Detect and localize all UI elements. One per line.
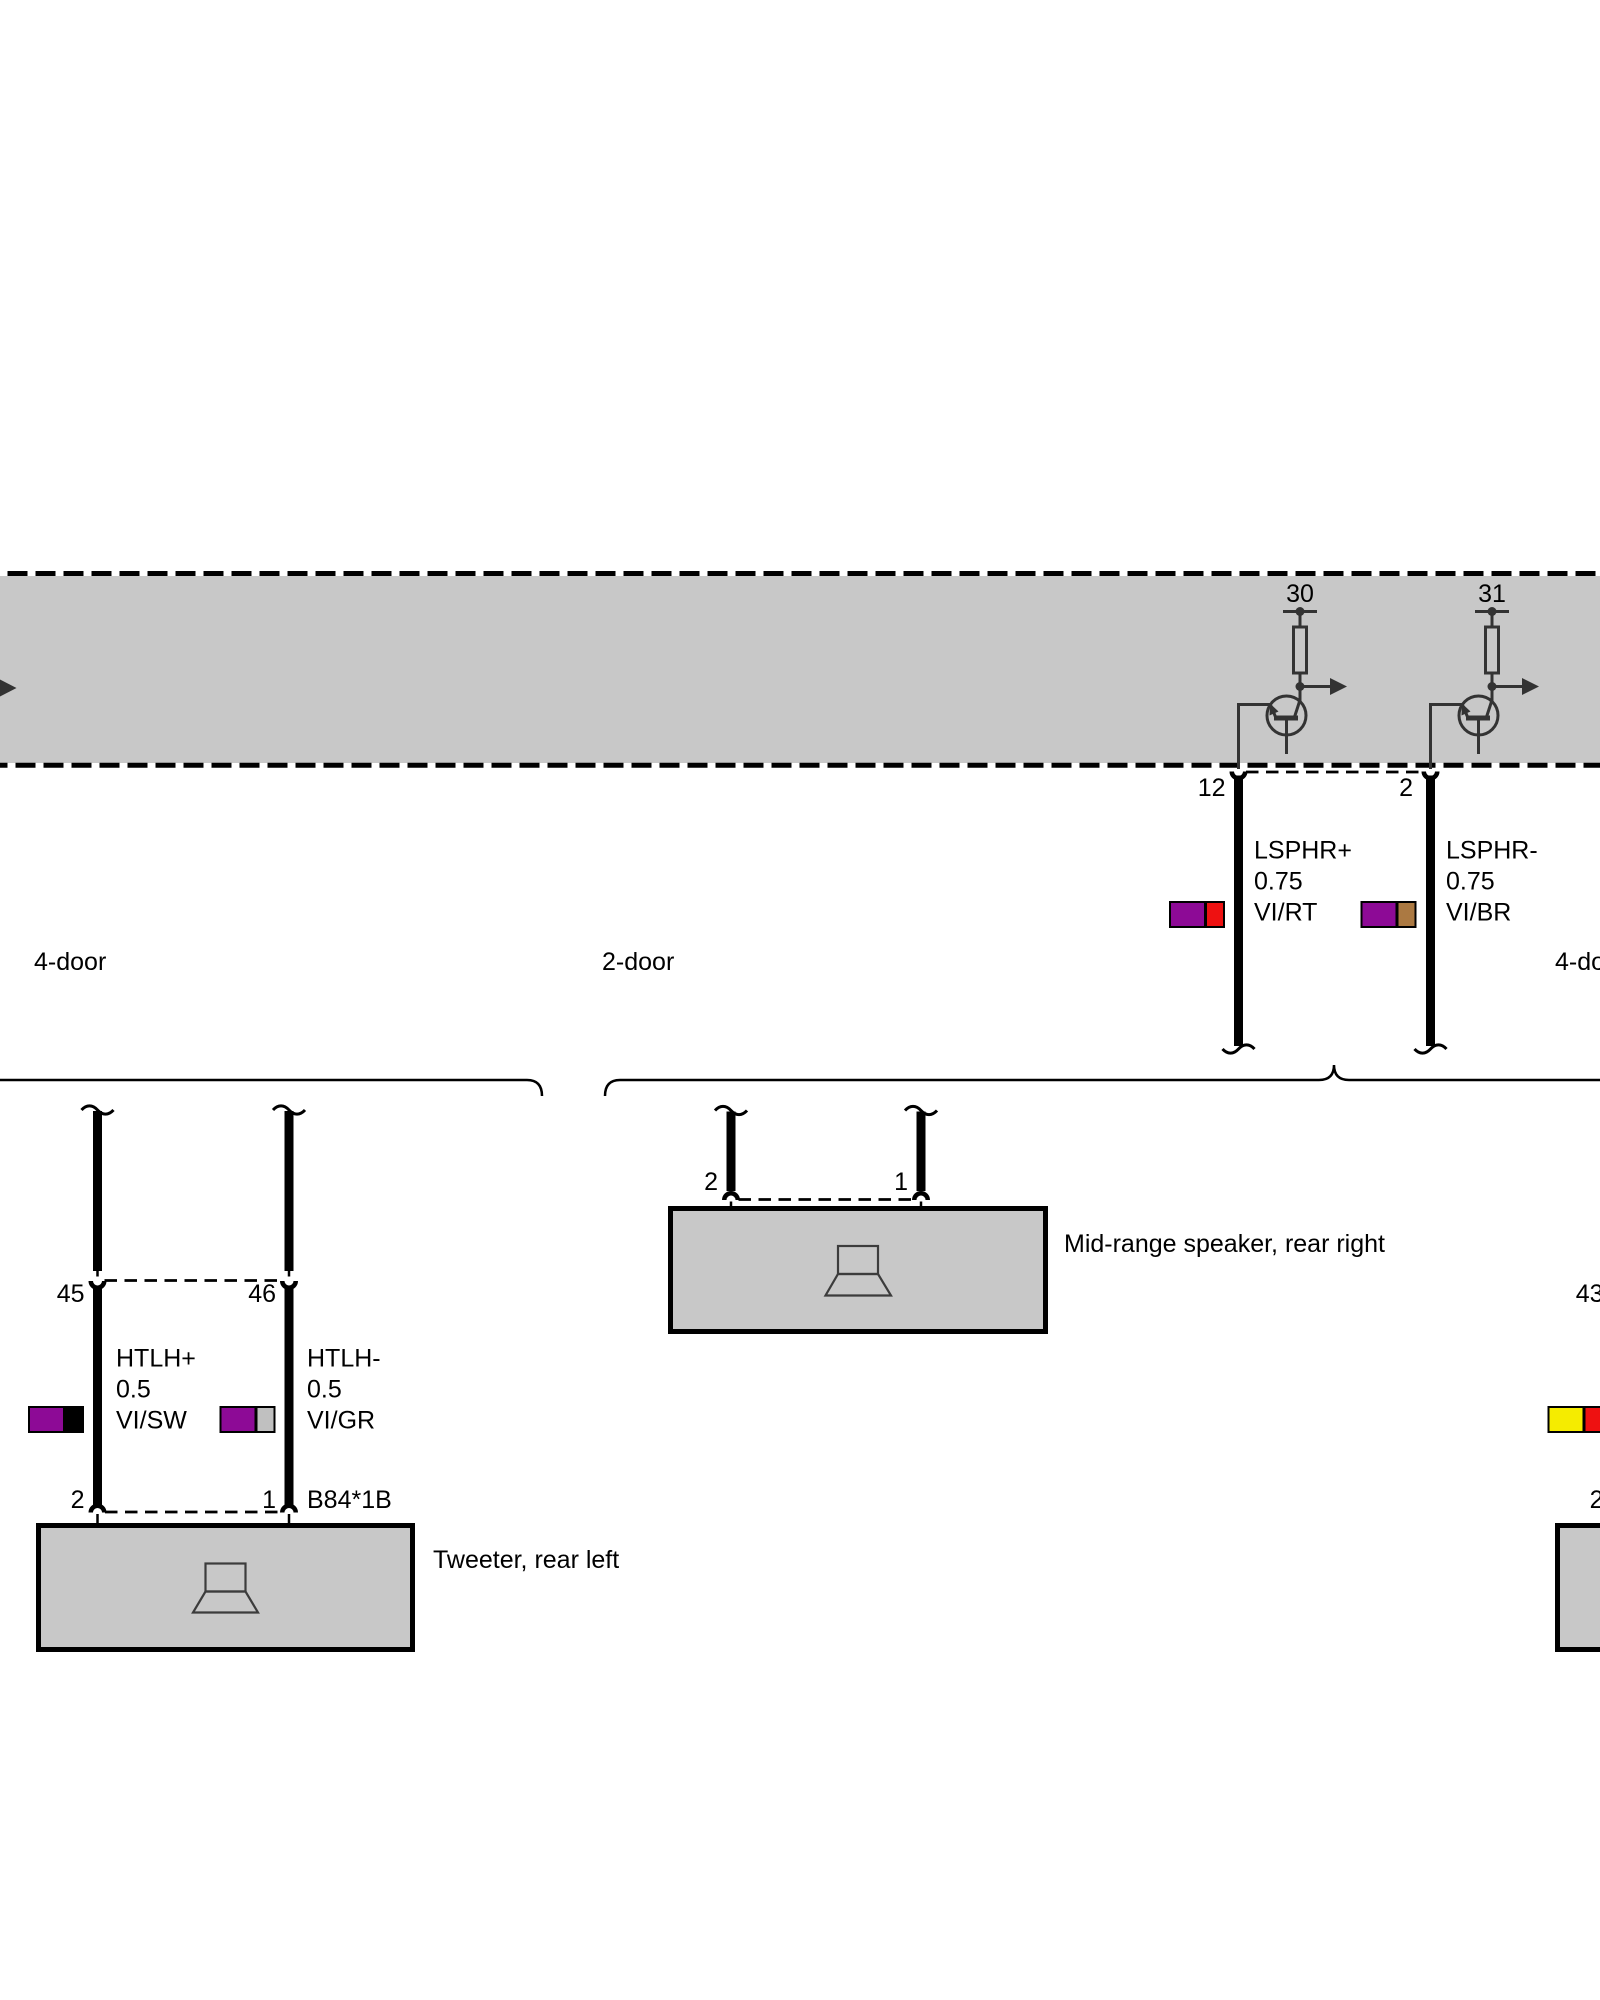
svg-text:2-door: 2-door — [602, 948, 674, 976]
svg-text:2: 2 — [704, 1168, 718, 1196]
svg-text:0.5: 0.5 — [307, 1376, 342, 1404]
svg-text:0.75: 0.75 — [1446, 868, 1495, 896]
svg-text:2: 2 — [71, 1486, 85, 1514]
svg-text:30: 30 — [1286, 580, 1314, 608]
svg-text:12: 12 — [1198, 774, 1226, 802]
svg-text:VI/RT: VI/RT — [1254, 899, 1317, 927]
svg-text:46: 46 — [248, 1280, 276, 1308]
svg-text:0.75: 0.75 — [1254, 868, 1303, 896]
svg-text:45: 45 — [57, 1280, 85, 1308]
svg-text:LSPHR+: LSPHR+ — [1254, 837, 1352, 865]
svg-text:VI/SW: VI/SW — [116, 1407, 187, 1435]
svg-text:HTLH-: HTLH- — [307, 1345, 381, 1373]
svg-text:Tweeter, rear left: Tweeter, rear left — [433, 1546, 619, 1574]
svg-text:Mid-range speaker, rear right: Mid-range speaker, rear right — [1064, 1230, 1385, 1258]
svg-text:VI/GR: VI/GR — [307, 1407, 375, 1435]
svg-text:2: 2 — [1590, 1486, 1600, 1514]
svg-text:4-door: 4-door — [1555, 948, 1600, 976]
svg-text:4-door: 4-door — [34, 948, 106, 976]
svg-text:VI/BR: VI/BR — [1446, 899, 1511, 927]
svg-text:1: 1 — [262, 1486, 276, 1514]
svg-text:B84*1B: B84*1B — [307, 1486, 392, 1514]
svg-text:2: 2 — [1399, 774, 1413, 802]
svg-text:HTLH+: HTLH+ — [116, 1345, 196, 1373]
svg-text:43: 43 — [1576, 1280, 1600, 1308]
svg-text:1: 1 — [894, 1168, 908, 1196]
svg-text:LSPHR-: LSPHR- — [1446, 837, 1538, 865]
svg-text:0.5: 0.5 — [116, 1376, 151, 1404]
svg-text:31: 31 — [1478, 580, 1506, 608]
